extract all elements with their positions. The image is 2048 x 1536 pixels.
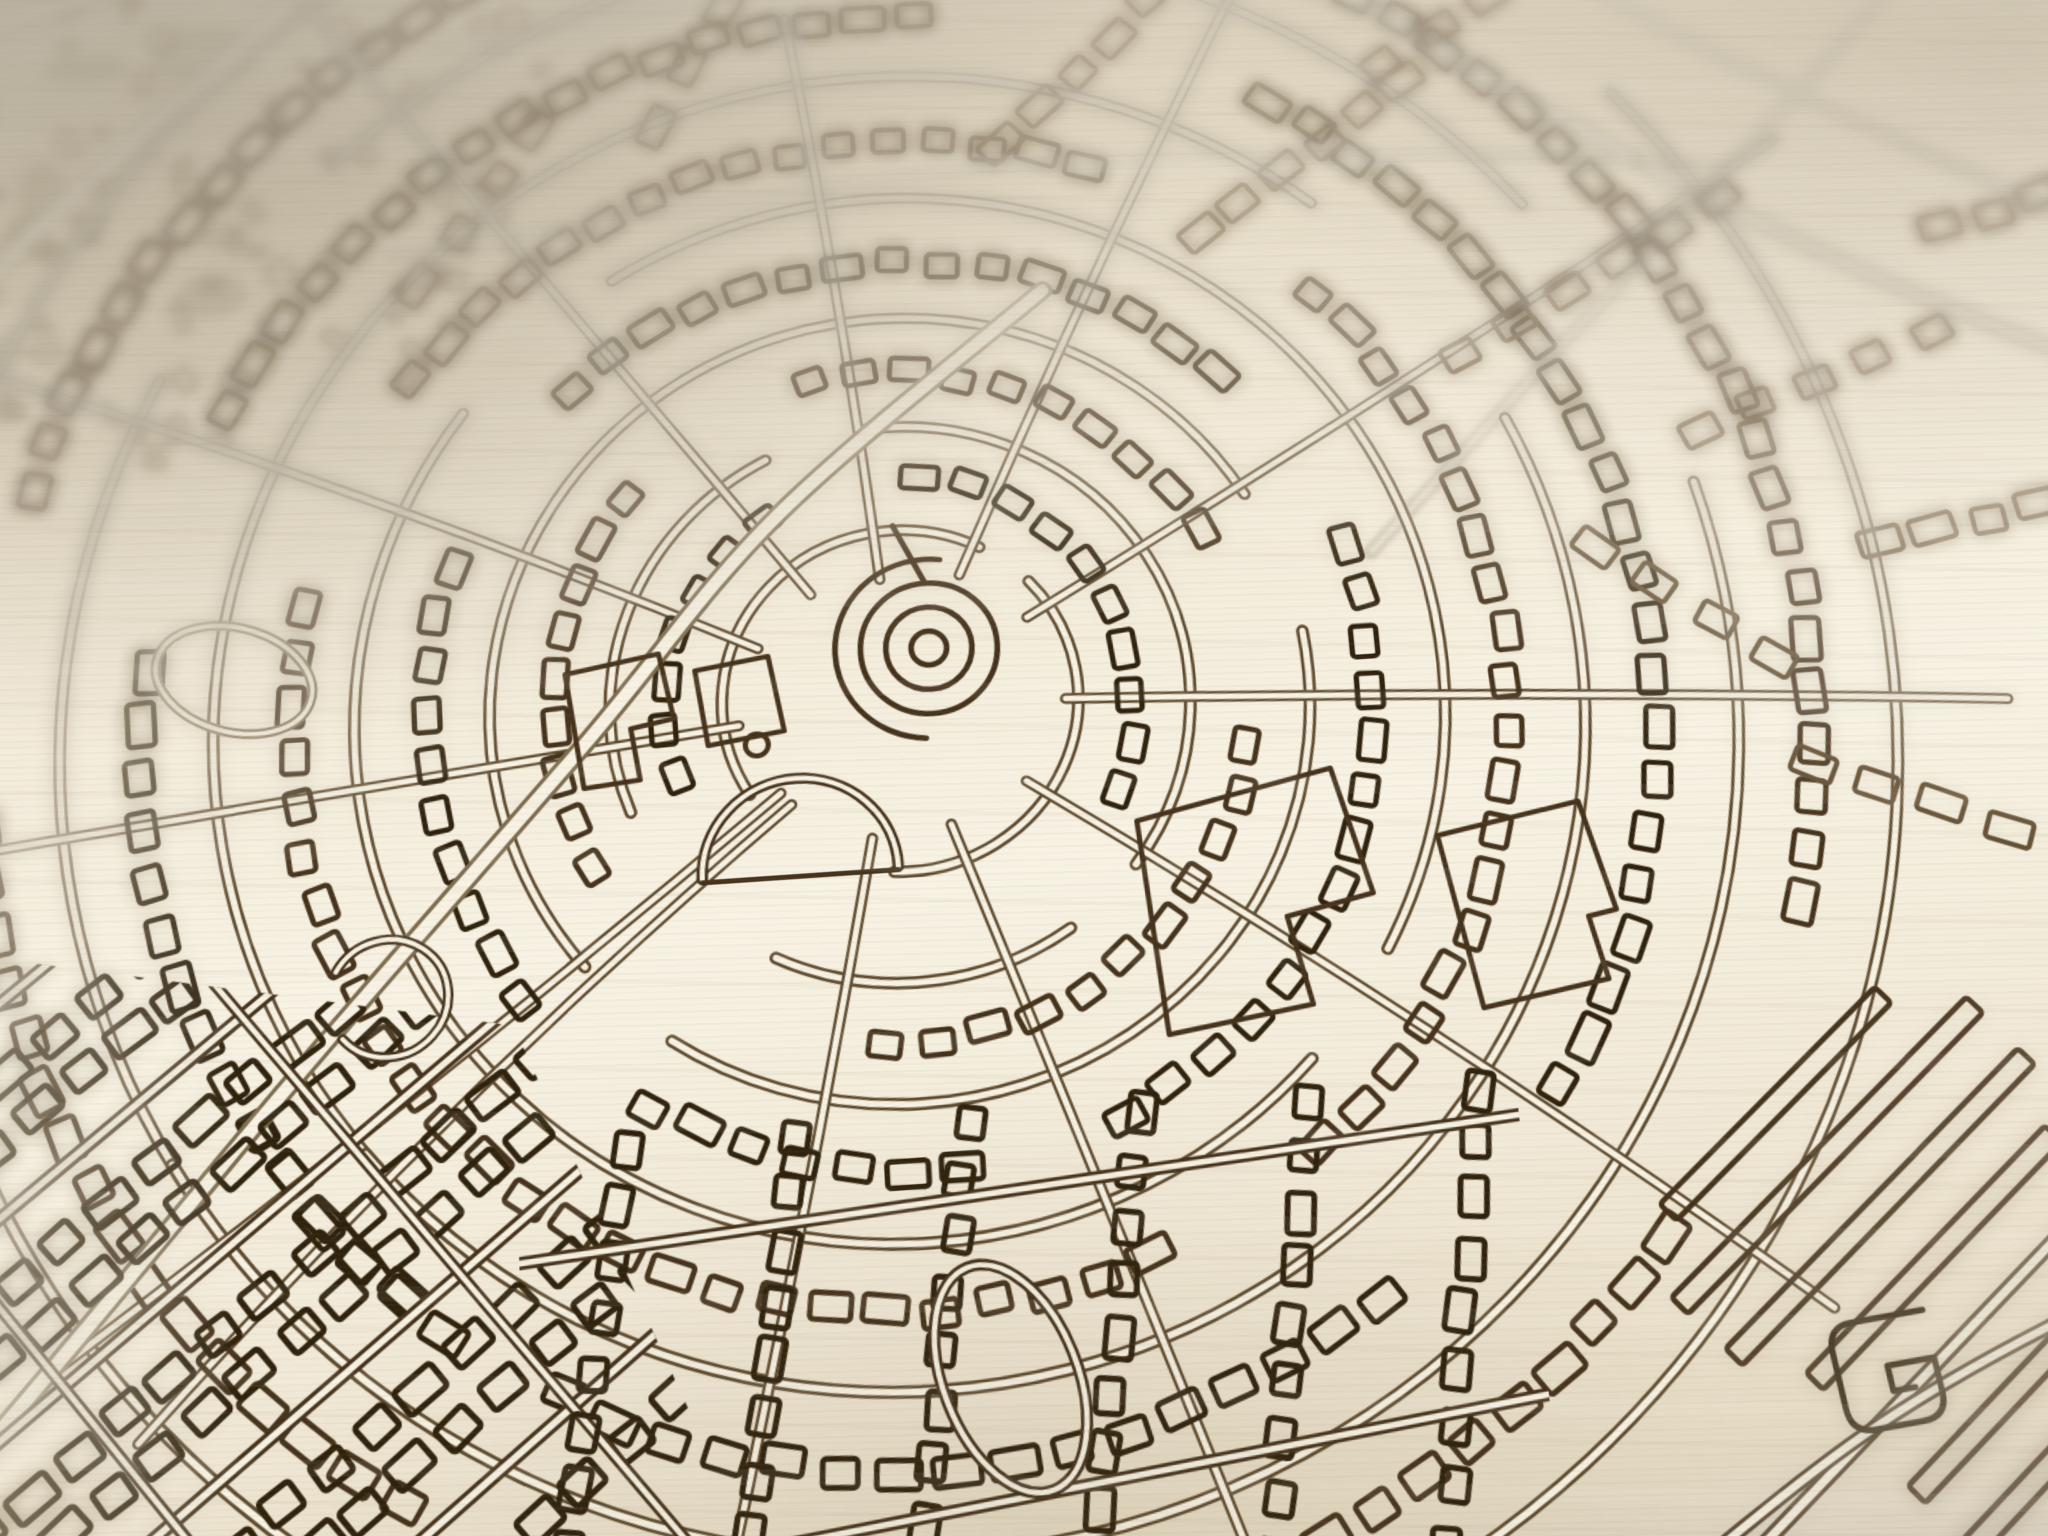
photo-of-wooden-city-map [0, 0, 2048, 1536]
engraved-map-linework [0, 0, 2048, 1536]
out-of-focus-layer [0, 0, 2048, 1536]
